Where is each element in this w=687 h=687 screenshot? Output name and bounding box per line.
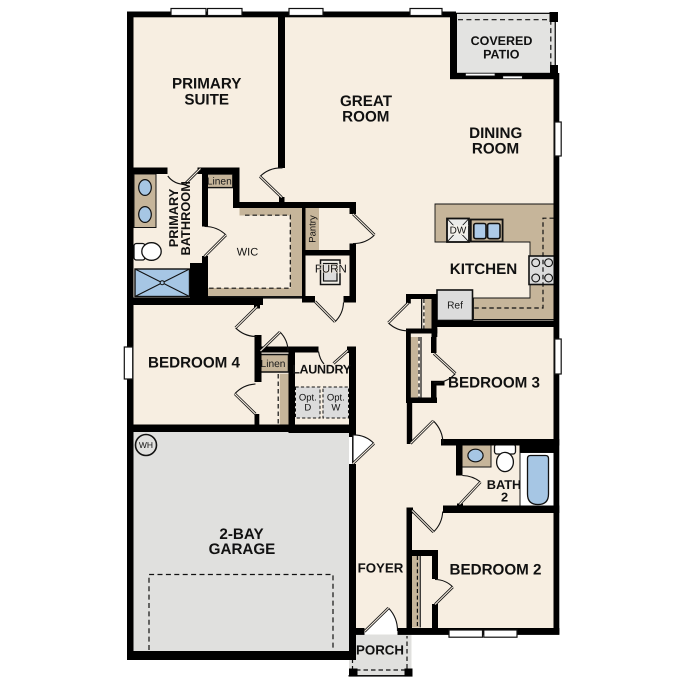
svg-text:BEDROOM 2: BEDROOM 2: [450, 562, 542, 579]
svg-text:BEDROOM 4: BEDROOM 4: [148, 355, 241, 372]
svg-text:DW: DW: [450, 226, 467, 237]
svg-text:ROOM: ROOM: [342, 109, 389, 126]
svg-text:SUITE: SUITE: [184, 92, 229, 109]
svg-text:KITCHEN: KITCHEN: [450, 261, 518, 278]
svg-text:PATIO: PATIO: [483, 48, 520, 62]
svg-text:Linen: Linen: [207, 177, 232, 188]
svg-text:Pantry: Pantry: [308, 215, 319, 243]
svg-text:PORCH: PORCH: [356, 643, 404, 658]
svg-text:DINING: DINING: [469, 125, 522, 142]
svg-text:PRIMARY: PRIMARY: [172, 76, 241, 93]
svg-text:LAUNDRY: LAUNDRY: [292, 363, 352, 377]
svg-text:WIC: WIC: [237, 247, 258, 259]
svg-text:W: W: [331, 403, 340, 414]
svg-text:GARAGE: GARAGE: [209, 541, 276, 558]
svg-text:BATHROOM: BATHROOM: [178, 181, 193, 255]
svg-text:COVERED: COVERED: [471, 34, 533, 48]
svg-text:ROOM: ROOM: [472, 141, 519, 158]
svg-text:WH: WH: [139, 440, 153, 450]
svg-text:BEDROOM 3: BEDROOM 3: [448, 375, 540, 392]
svg-text:FURN: FURN: [315, 264, 347, 276]
svg-text:Ref: Ref: [447, 301, 463, 312]
svg-text:2: 2: [501, 490, 508, 505]
svg-text:FOYER: FOYER: [358, 561, 404, 576]
svg-text:GREAT: GREAT: [340, 93, 393, 110]
svg-text:D: D: [304, 403, 311, 414]
svg-text:Linen: Linen: [261, 359, 286, 370]
